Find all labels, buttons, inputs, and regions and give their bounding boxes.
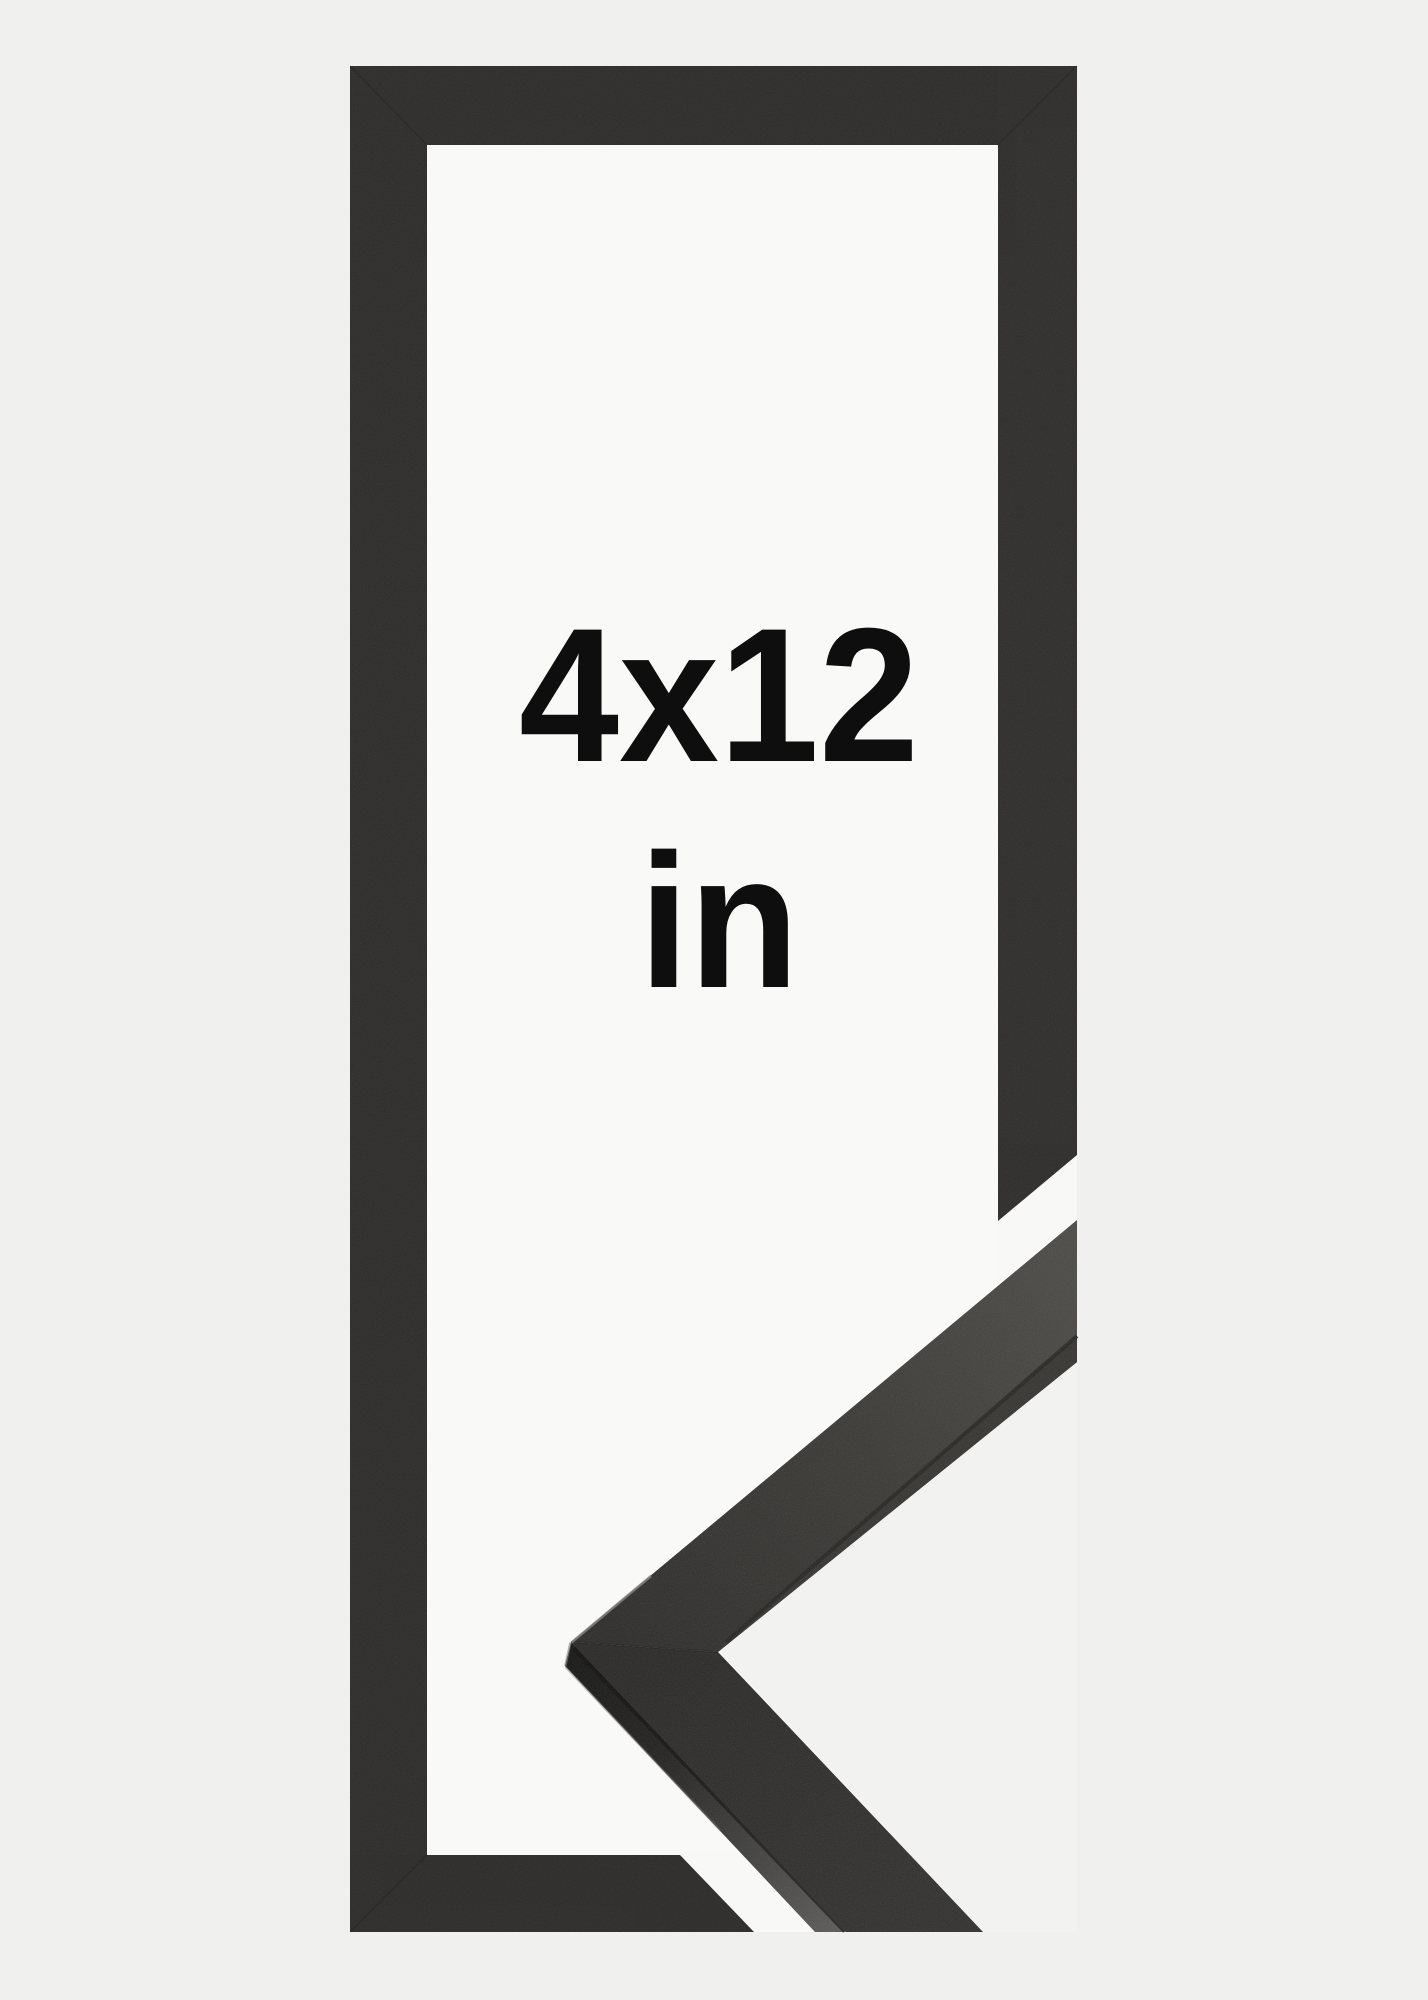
svg-text:in: in [639, 815, 799, 1028]
svg-text:4x12: 4x12 [519, 589, 919, 802]
